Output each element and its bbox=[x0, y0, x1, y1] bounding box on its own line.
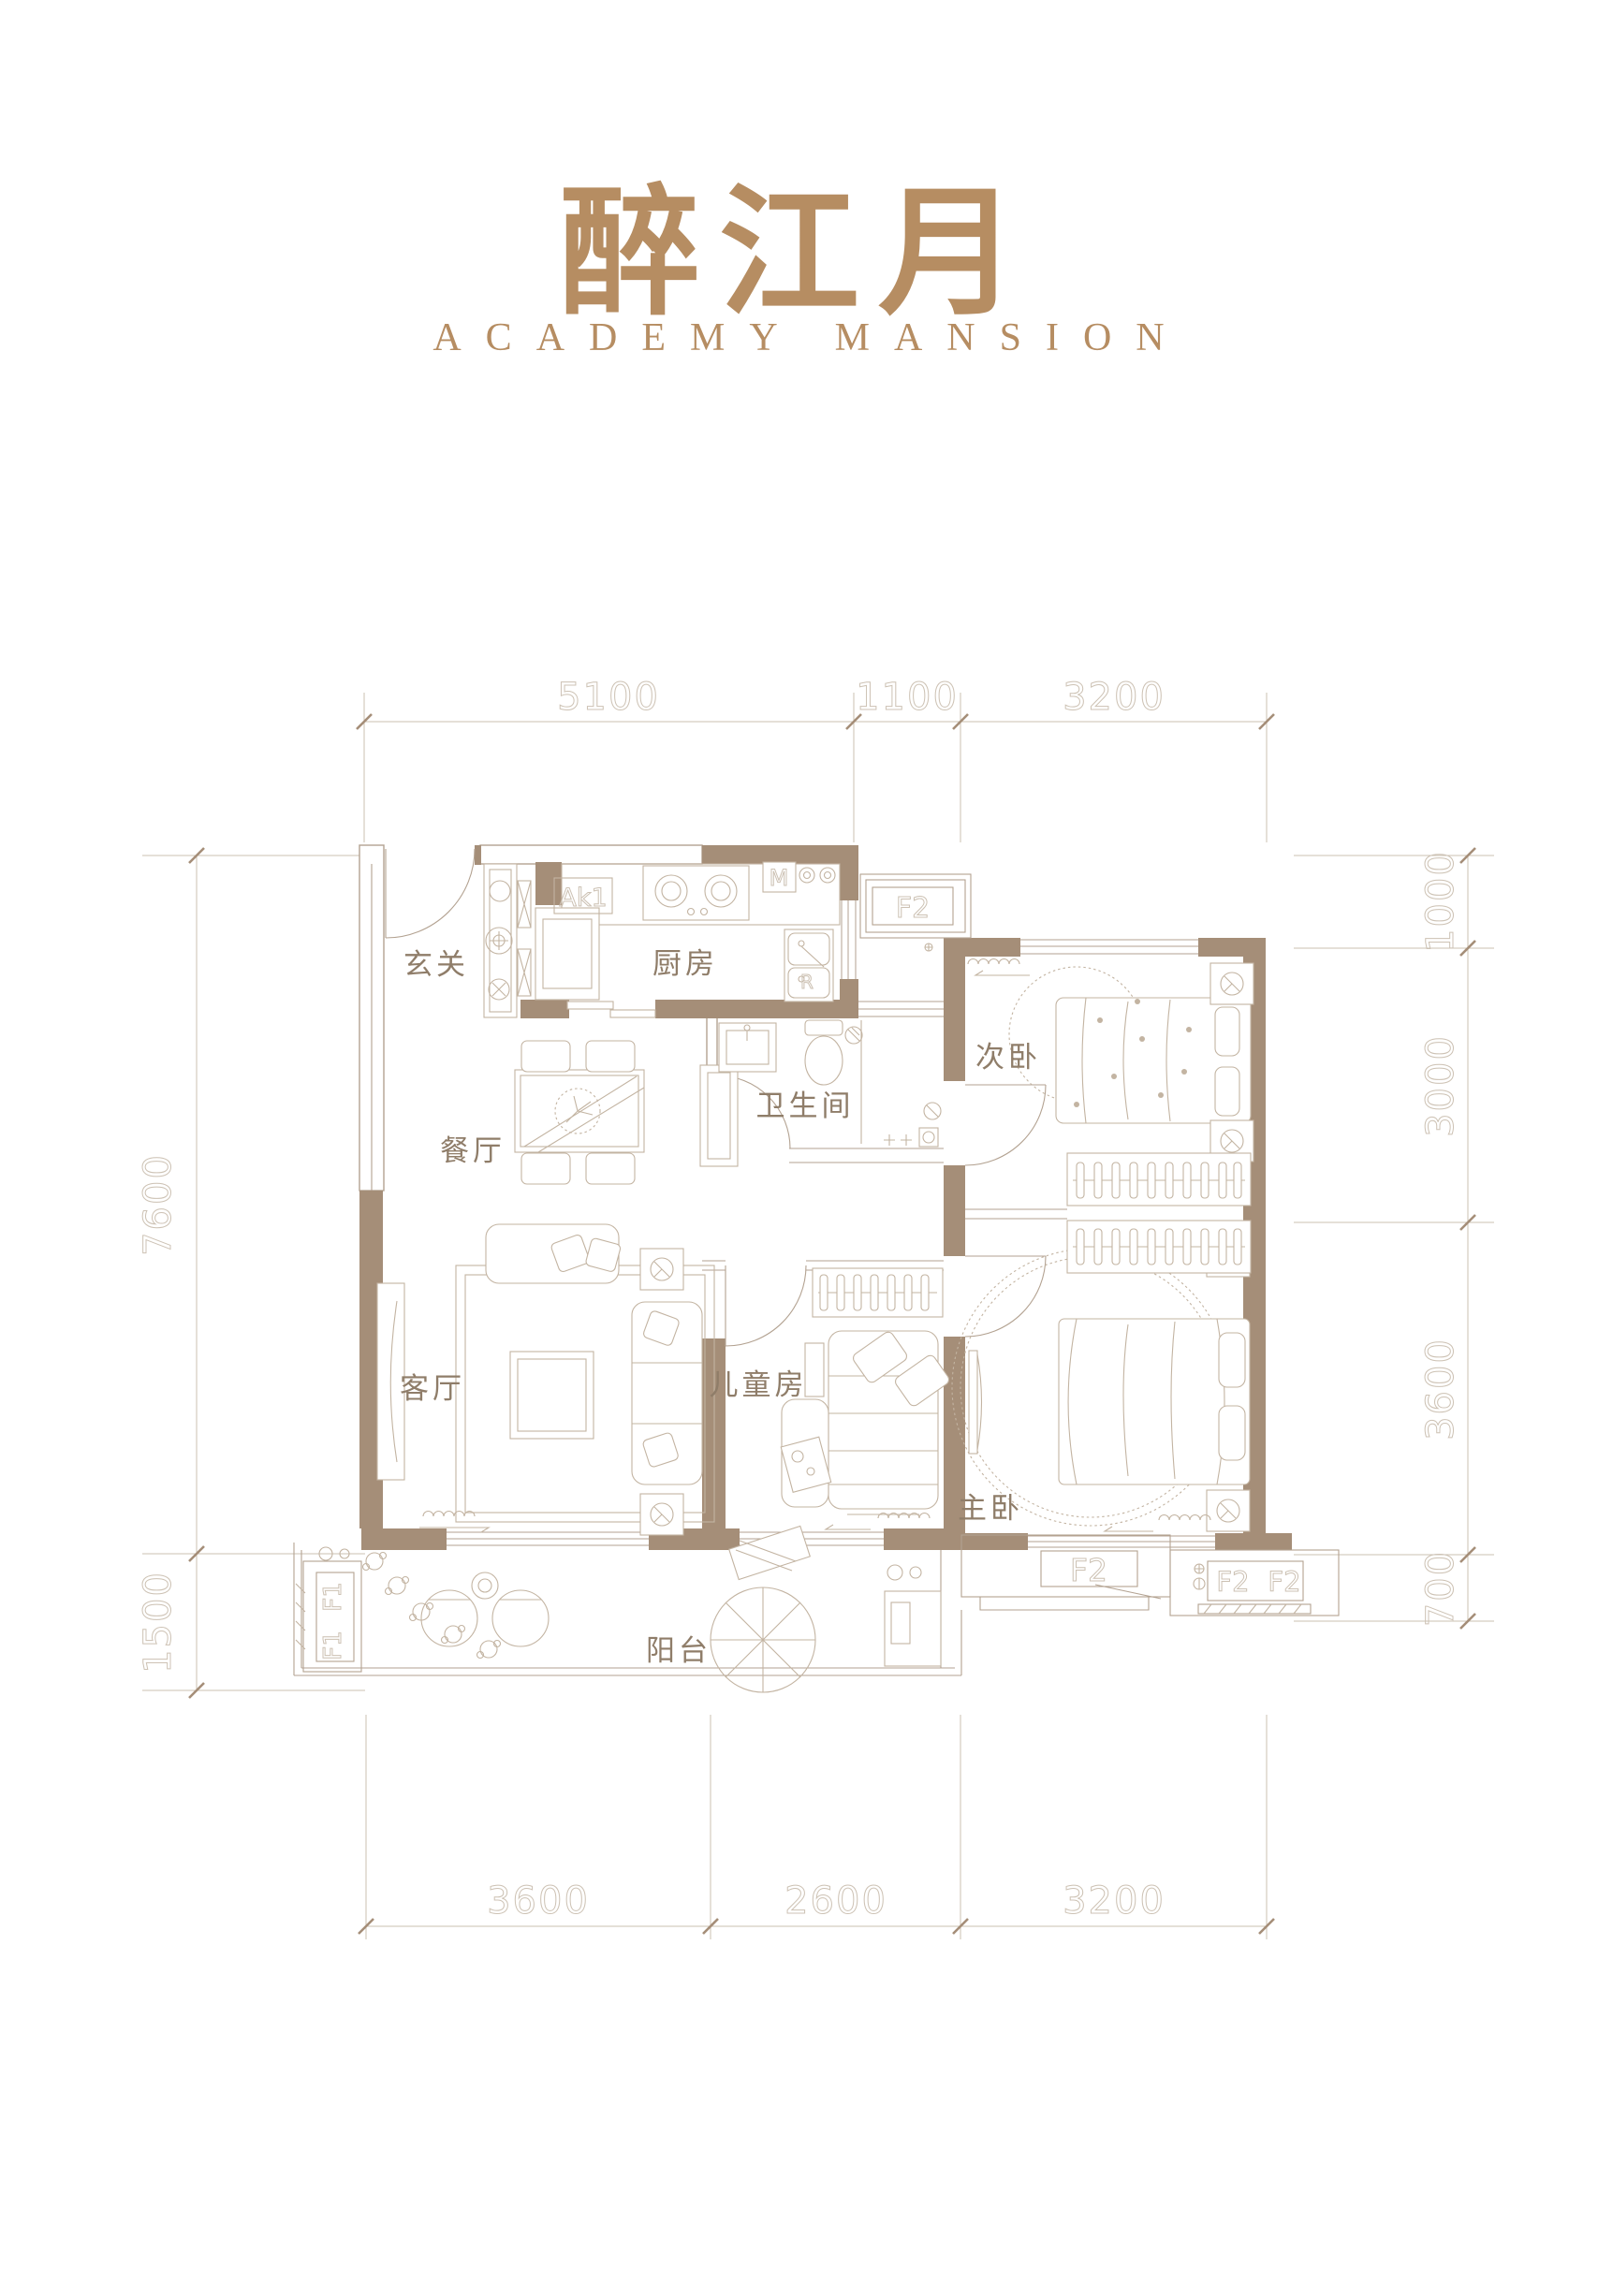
page-subtitle: ACADEMY MANSION bbox=[432, 316, 1188, 359]
dim-bottom-2: 3200 bbox=[1063, 1879, 1166, 1923]
mark-ak1: Ak1 bbox=[559, 884, 607, 913]
room-label-entry: 玄关 bbox=[403, 948, 469, 981]
dim-right-3: 700 bbox=[1419, 1550, 1462, 1627]
room-label-kitchen: 厨房 bbox=[652, 947, 718, 980]
bathroom-fixtures bbox=[719, 1020, 941, 1147]
dim-right-2: 3600 bbox=[1419, 1338, 1462, 1440]
dim-left-1: 1500 bbox=[137, 1571, 180, 1674]
mark-r: R bbox=[800, 971, 814, 993]
dim-top-2: 3200 bbox=[1063, 676, 1166, 719]
header: 醉江月 ACADEMY MANSION bbox=[432, 177, 1188, 359]
dim-left-0: 7600 bbox=[137, 1153, 180, 1256]
page-title: 醉江月 bbox=[560, 177, 1037, 332]
floorplan-canvas: 醉江月 ACADEMY MANSION 5100 1100 3200 3600 … bbox=[0, 0, 1598, 2296]
dim-top-1: 1100 bbox=[856, 676, 959, 719]
master-furniture bbox=[952, 1221, 1251, 1531]
dim-top-0: 5100 bbox=[557, 676, 660, 719]
mark-f1-a: F1 bbox=[319, 1582, 347, 1612]
mark-f2-master: F2 bbox=[1070, 1552, 1107, 1588]
room-label-bathroom: 卫生间 bbox=[756, 1090, 855, 1122]
room-label-living: 客厅 bbox=[400, 1372, 465, 1405]
room-label-dining: 餐厅 bbox=[440, 1134, 506, 1167]
room-label-master: 主卧 bbox=[958, 1492, 1023, 1525]
mark-f1-b: F1 bbox=[319, 1631, 347, 1660]
room-label-kids: 儿童房 bbox=[710, 1368, 808, 1401]
mark-f2-top: F2 bbox=[896, 892, 930, 925]
bedroom2-furniture bbox=[968, 959, 1253, 1206]
dining-furniture bbox=[515, 1041, 738, 1184]
dim-right-0: 1000 bbox=[1419, 850, 1462, 953]
mark-f2-right-b: F2 bbox=[1268, 1566, 1300, 1598]
dim-bottom-1: 2600 bbox=[784, 1879, 887, 1923]
mark-f2-right-a: F2 bbox=[1216, 1566, 1249, 1598]
mark-meter: M bbox=[770, 865, 789, 891]
balcony bbox=[294, 1526, 961, 1692]
room-label-bedroom2: 次卧 bbox=[975, 1041, 1041, 1074]
floorplan-poster: 醉江月 ACADEMY MANSION 5100 1100 3200 3600 … bbox=[0, 0, 1598, 2296]
room-label-balcony: 阳台 bbox=[646, 1634, 711, 1667]
dim-right-1: 3000 bbox=[1419, 1034, 1462, 1137]
dim-bottom-0: 3600 bbox=[487, 1879, 590, 1923]
